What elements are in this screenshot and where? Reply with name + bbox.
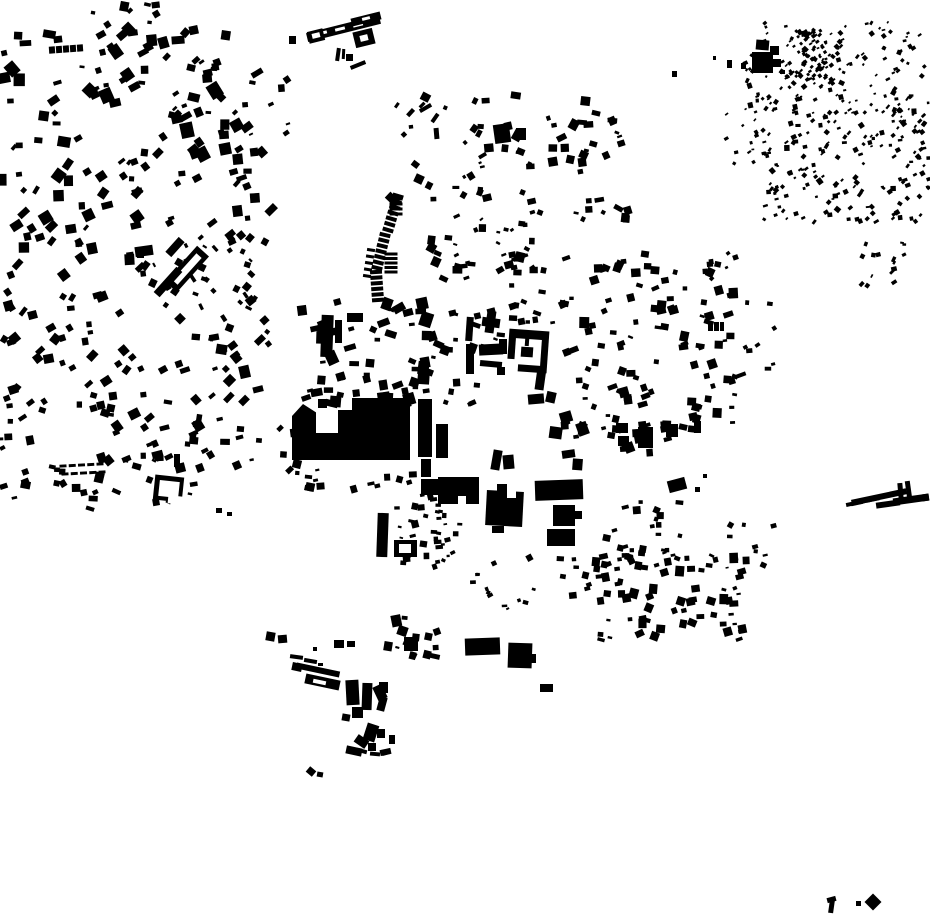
footprint-svg <box>0 0 930 924</box>
figure-ground-map <box>0 0 930 924</box>
